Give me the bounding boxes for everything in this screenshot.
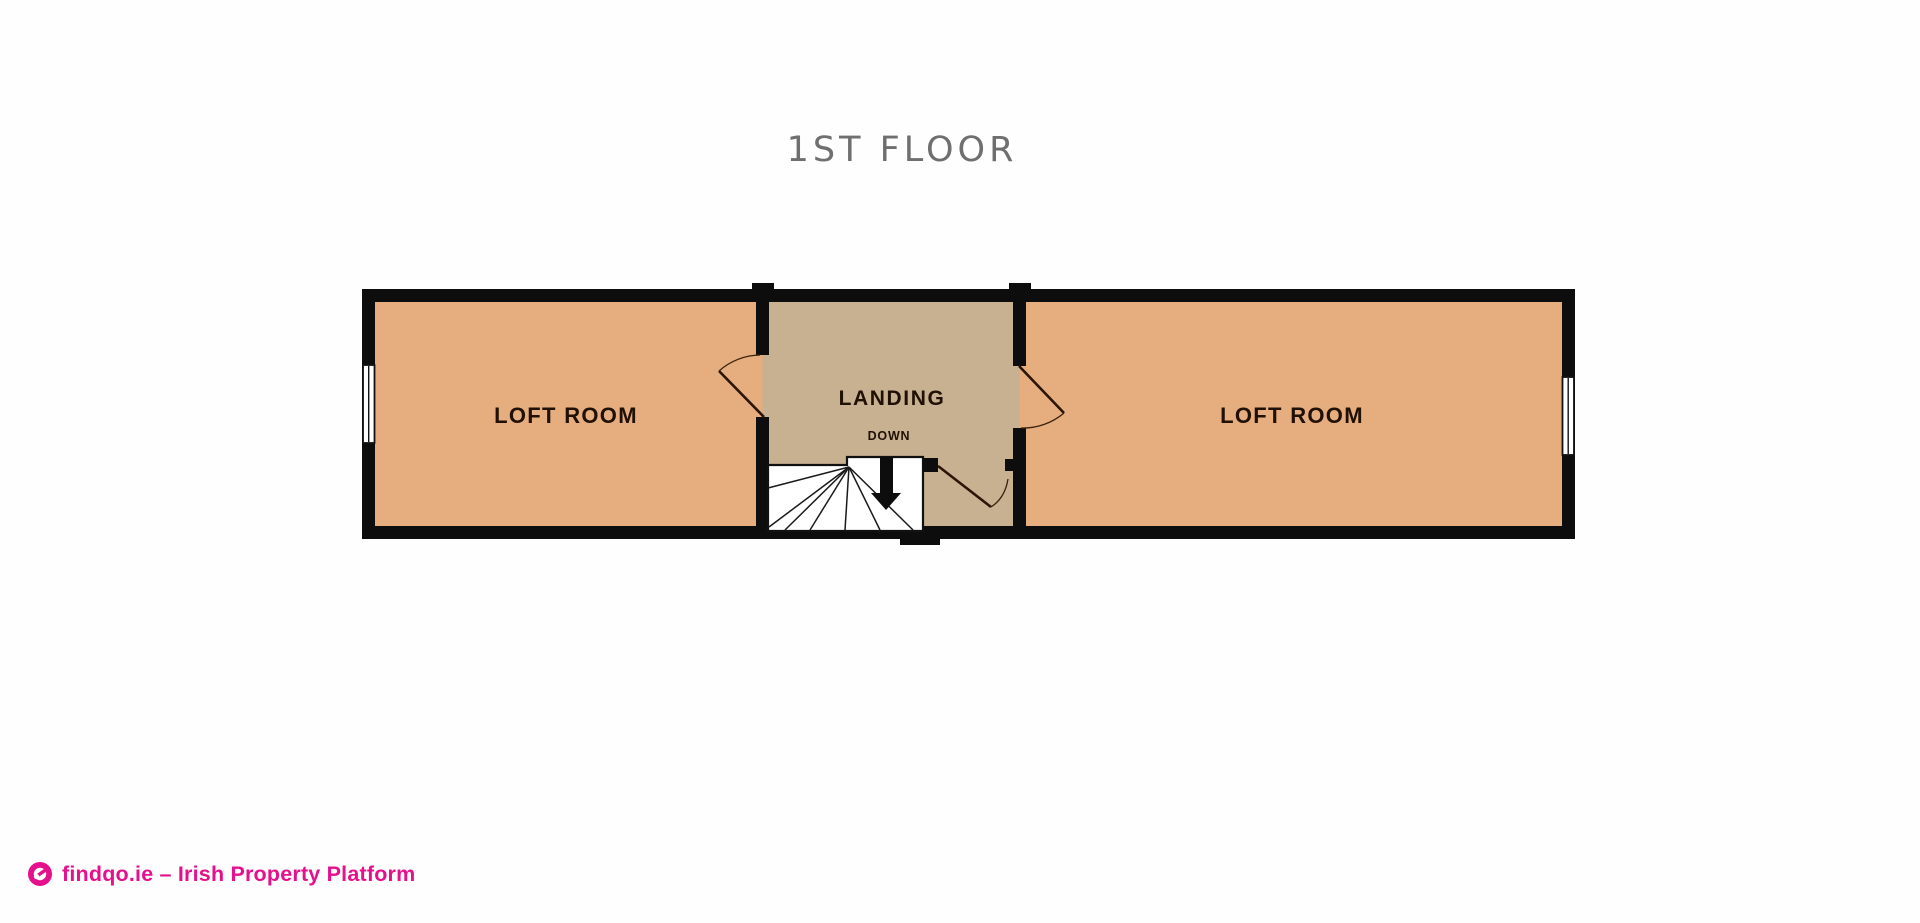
stairs xyxy=(768,457,923,531)
stair-door-stub-left xyxy=(923,458,938,472)
right-wall-window xyxy=(1563,377,1575,455)
footer-brand-text: findqo.ie – Irish Property Platform xyxy=(62,861,415,887)
left-door-gap-floor-a xyxy=(756,355,763,417)
findqo-globe-icon xyxy=(27,861,53,887)
right-loft-room-label: LOFT ROOM xyxy=(1220,403,1364,428)
floorplan-page: 1ST FLOOR xyxy=(0,0,1920,923)
landing-label: LANDING xyxy=(839,387,946,410)
floorplan-drawing: LOFT ROOM LOFT ROOM LANDING DOWN xyxy=(362,283,1575,547)
left-door-gap-floor-b xyxy=(763,355,770,417)
footer-brand: findqo.ie – Irish Property Platform xyxy=(27,861,415,887)
right-door-gap-floor-b xyxy=(1020,366,1027,428)
wall-nub-bottom xyxy=(900,538,940,545)
left-loft-room-label: LOFT ROOM xyxy=(494,403,638,428)
stair-door-stub-right xyxy=(1005,459,1013,471)
right-door-gap-floor-a xyxy=(1013,366,1020,428)
stairs-down-label: DOWN xyxy=(868,429,911,443)
floor-title: 1ST FLOOR xyxy=(787,130,1018,170)
left-wall-window xyxy=(363,365,375,443)
